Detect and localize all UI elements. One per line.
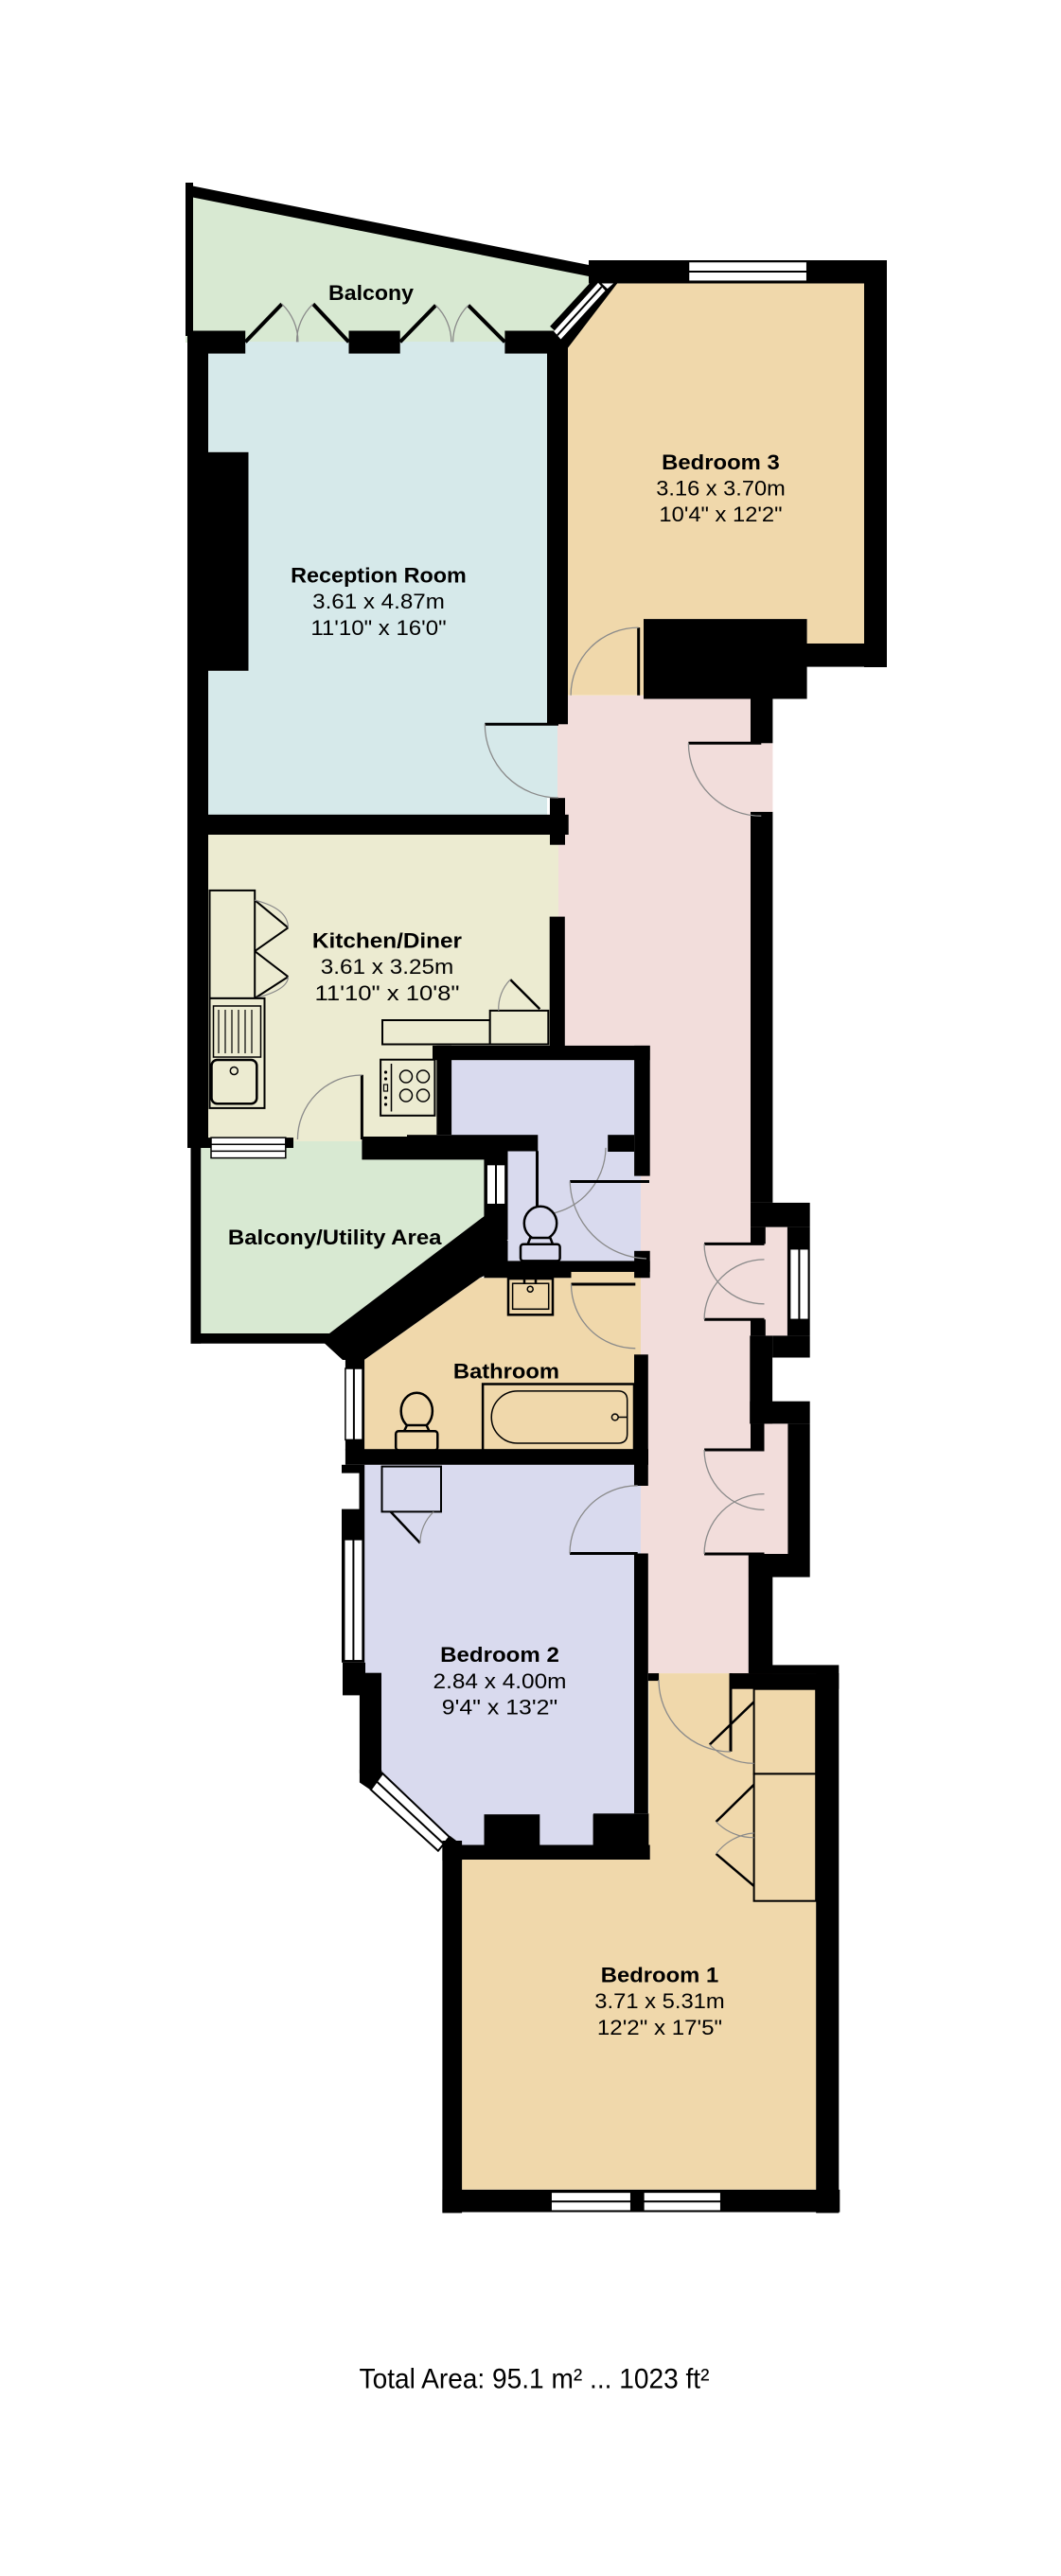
- svg-text:Bedroom 2: Bedroom 2: [440, 1643, 559, 1667]
- svg-text:Bedroom 1: Bedroom 1: [601, 1964, 718, 1987]
- svg-text:3.61 x 3.25m: 3.61 x 3.25m: [321, 955, 454, 979]
- svg-text:Bathroom: Bathroom: [453, 1360, 559, 1384]
- svg-text:Kitchen/Diner: Kitchen/Diner: [312, 929, 463, 953]
- svg-text:3.61 x 4.87m: 3.61 x 4.87m: [312, 590, 445, 613]
- svg-text:Reception Room: Reception Room: [291, 563, 467, 587]
- svg-text:Total Area: 95.1 m² ... 1023 f: Total Area: 95.1 m² ... 1023 ft²: [360, 2364, 710, 2395]
- svg-text:10'4" x 12'2": 10'4" x 12'2": [659, 503, 782, 526]
- svg-text:2.84 x 4.00m: 2.84 x 4.00m: [433, 1669, 567, 1693]
- svg-text:Balcony: Balcony: [328, 281, 415, 305]
- svg-text:Bedroom 3: Bedroom 3: [662, 450, 780, 474]
- svg-text:11'10" x 16'0": 11'10" x 16'0": [310, 616, 446, 640]
- svg-text:11'10" x 10'8": 11'10" x 10'8": [315, 981, 460, 1005]
- svg-text:9'4" x 13'2": 9'4" x 13'2": [442, 1695, 557, 1719]
- svg-text:3.71 x 5.31m: 3.71 x 5.31m: [594, 1989, 724, 2013]
- svg-text:Balcony/Utility Area: Balcony/Utility Area: [228, 1226, 442, 1249]
- svg-text:12'2" x 17'5": 12'2" x 17'5": [597, 2016, 722, 2039]
- svg-text:3.16 x 3.70m: 3.16 x 3.70m: [656, 476, 786, 500]
